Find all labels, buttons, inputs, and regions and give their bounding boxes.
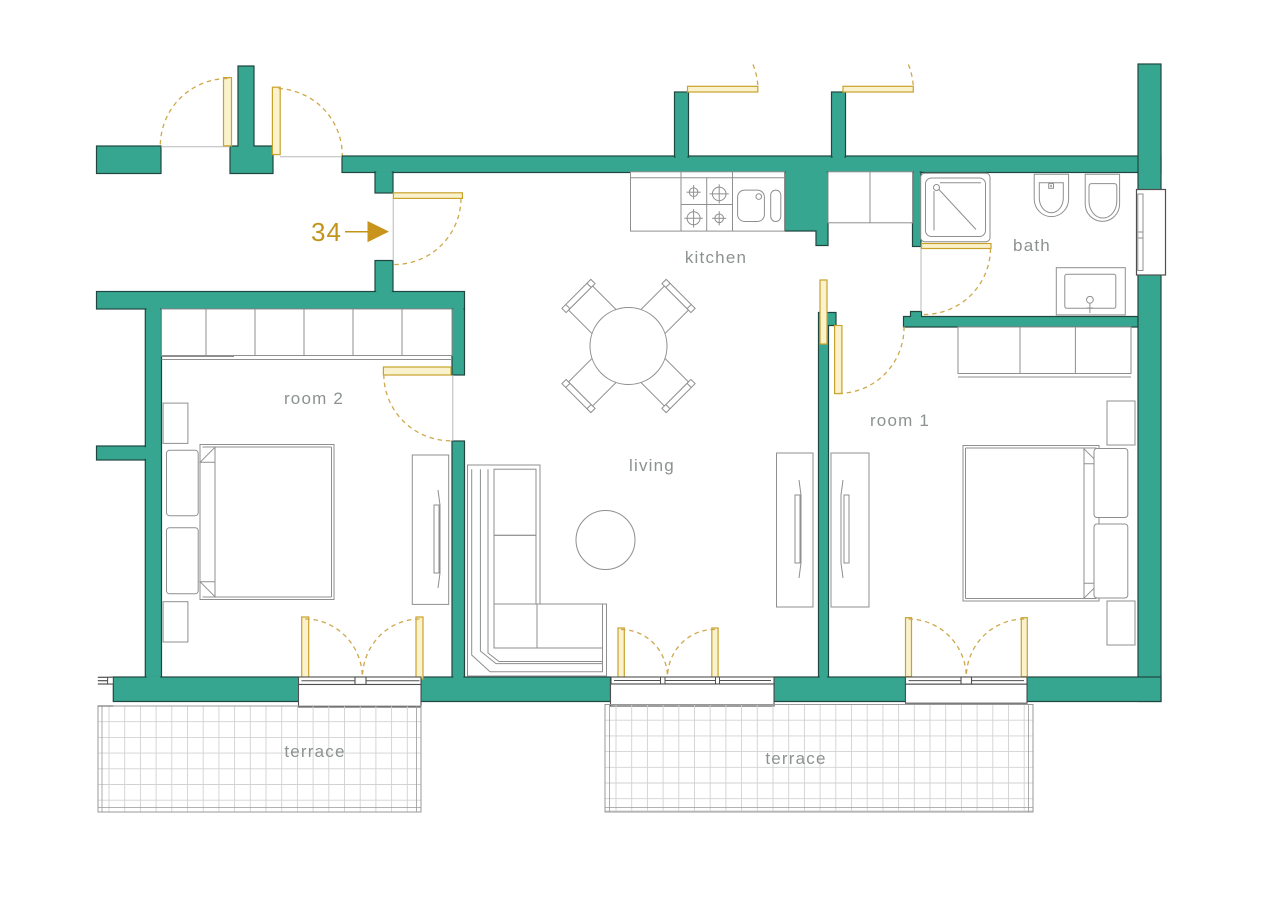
svg-text:room 2: room 2 [284, 389, 344, 408]
svg-text:living: living [629, 456, 675, 475]
svg-text:kitchen: kitchen [685, 248, 747, 267]
svg-text:terrace: terrace [765, 749, 826, 768]
svg-text:bath: bath [1013, 236, 1051, 255]
svg-text:room 1: room 1 [870, 411, 930, 430]
svg-text:34: 34 [311, 217, 342, 247]
svg-text:terrace: terrace [284, 742, 345, 761]
